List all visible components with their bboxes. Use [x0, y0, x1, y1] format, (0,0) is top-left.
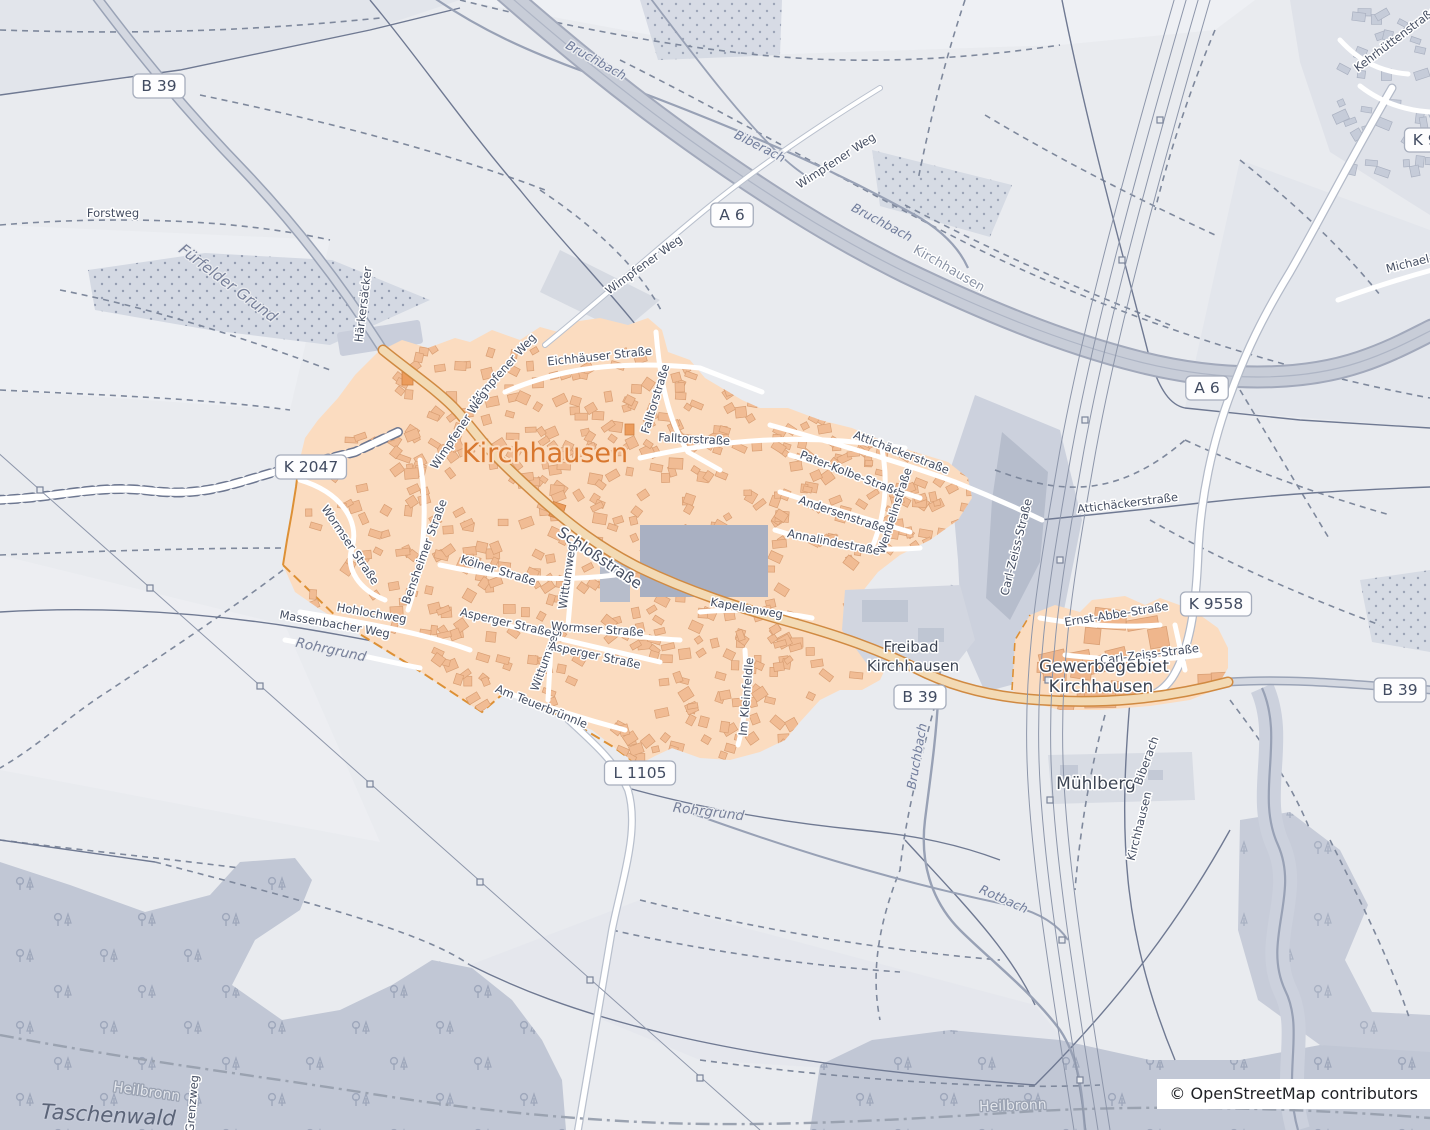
- svg-text:K 9558: K 9558: [1189, 595, 1244, 613]
- road-ref-badge: A 6: [1186, 376, 1229, 400]
- orchard-top: [640, 0, 782, 60]
- map-canvas[interactable]: ForstwegFürfelder GrundHärkersäckerBruch…: [0, 0, 1430, 1130]
- map-label-place: Freibad: [883, 638, 938, 656]
- road-ref-badge: L 1105: [605, 761, 676, 785]
- svg-text:B 39: B 39: [141, 77, 176, 95]
- road-ref-badge: B 39: [1374, 678, 1426, 702]
- svg-text:B 39: B 39: [902, 688, 937, 706]
- map-label-place: Kirchhausen: [867, 657, 959, 675]
- pylon-icon: [1082, 417, 1088, 423]
- svg-text:L 1105: L 1105: [613, 764, 666, 782]
- svg-text:K 9558: K 9558: [1413, 131, 1430, 149]
- map-label-placelg: Gewerbegebiet: [1039, 657, 1169, 677]
- svg-text:B 39: B 39: [1382, 681, 1417, 699]
- road-ref-badge: K 9558: [1405, 128, 1430, 152]
- map-label-placelg: Kirchhausen: [1049, 677, 1154, 697]
- road-ref-badge: B 39: [133, 74, 185, 98]
- pylon-icon: [257, 683, 263, 689]
- road-ref-badge: K 2047: [276, 455, 347, 479]
- svg-text:A 6: A 6: [719, 206, 744, 224]
- map-label-placelg: Mühlberg: [1056, 774, 1136, 794]
- pylon-icon: [1077, 1077, 1083, 1083]
- pylon-icon: [37, 487, 43, 493]
- map-label-boundarylight: Heilbronn: [979, 1097, 1047, 1115]
- map-label-street: Forstweg: [87, 206, 139, 220]
- pylon-icon: [587, 977, 593, 983]
- map-label-town: Kirchhausen: [462, 438, 628, 469]
- pylon-icon: [1157, 117, 1163, 123]
- pylon-icon: [1047, 797, 1053, 803]
- pylon-icon: [367, 781, 373, 787]
- osm-attribution[interactable]: © OpenStreetMap contributors: [1157, 1079, 1430, 1109]
- pylon-icon: [1059, 937, 1065, 943]
- pylon-icon: [477, 879, 483, 885]
- road-ref-badge: K 9558: [1181, 592, 1252, 616]
- school-building: [640, 525, 768, 597]
- road-ref-badge: A 6: [711, 203, 754, 227]
- pylon-icon: [147, 585, 153, 591]
- road-ref-badge: B 39: [894, 685, 946, 709]
- freibad-pool: [862, 600, 908, 622]
- pylon-icon: [1119, 257, 1125, 263]
- svg-text:A 6: A 6: [1194, 379, 1219, 397]
- pylon-icon: [697, 1075, 703, 1081]
- svg-text:K 2047: K 2047: [284, 458, 339, 476]
- pylon-icon: [1057, 557, 1063, 563]
